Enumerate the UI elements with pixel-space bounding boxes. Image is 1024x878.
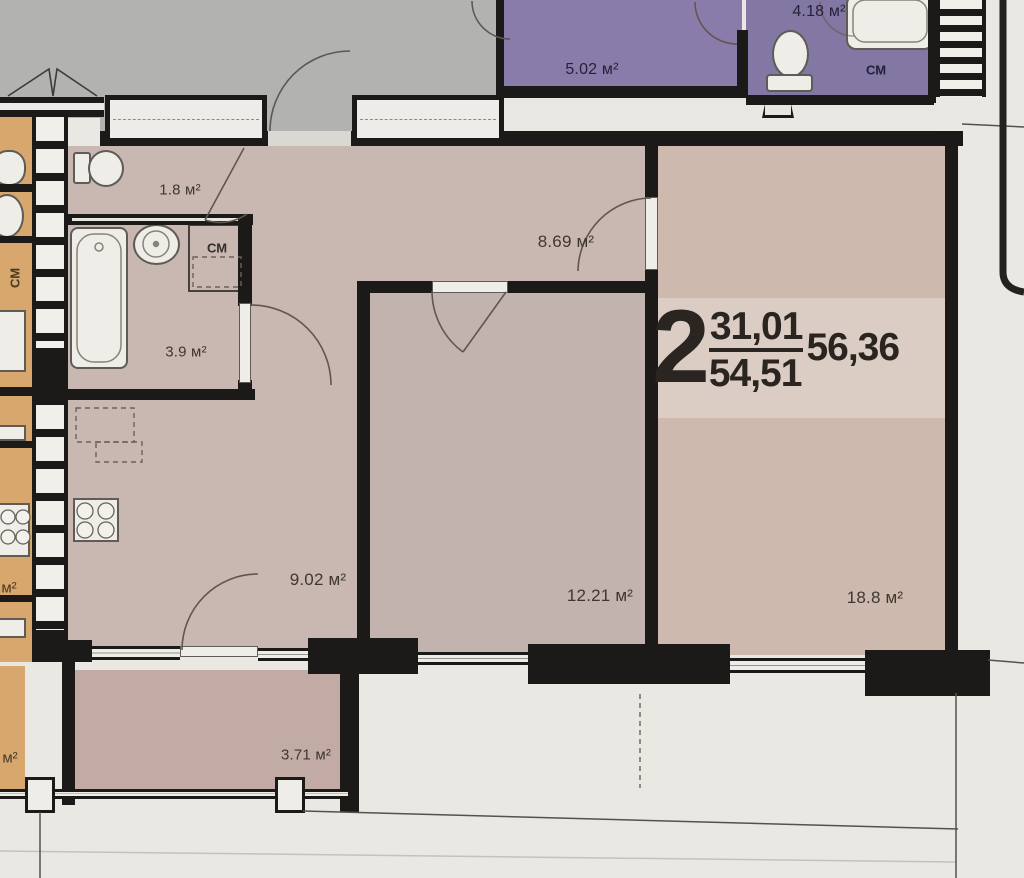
wall-segment <box>502 86 746 98</box>
wall-segment <box>0 236 32 243</box>
balcony-wall <box>62 662 75 805</box>
balcony-floor <box>75 670 340 790</box>
wall-segment <box>32 348 68 398</box>
stove-icon <box>73 498 119 542</box>
neighbor-counter <box>0 425 26 441</box>
door-leaf <box>239 303 251 383</box>
room-label: 5.02 м² <box>565 61 618 79</box>
sink-icon <box>133 224 180 265</box>
door-leaf <box>645 197 658 270</box>
wall-segment <box>238 214 252 306</box>
wall-cavity <box>0 103 104 110</box>
neighbor-counter <box>0 618 26 638</box>
wall-segment <box>357 281 370 655</box>
window <box>418 652 528 665</box>
facade-line <box>962 124 1024 127</box>
neighbor-balcony <box>0 666 25 790</box>
wall-segment <box>928 0 936 103</box>
room-label: 3.9 м² <box>165 344 207 361</box>
wall-pier <box>865 650 990 696</box>
neighbor-toilet-icon <box>0 150 26 186</box>
facade-line <box>303 811 958 829</box>
room-label: 8.69 м² <box>538 232 595 252</box>
washer-label: СМ <box>8 268 23 288</box>
apartment-stamp: 2 31,01 54,51 56,36 <box>652 300 958 418</box>
neighbor-stove-icon <box>0 503 30 557</box>
rooms-count: 2 <box>652 300 709 396</box>
room-label: 9.02 м² <box>290 570 347 590</box>
wall-cavity <box>72 218 246 221</box>
washer-label: СМ <box>866 63 886 78</box>
door-leaf <box>432 281 508 293</box>
rail-post <box>25 777 55 813</box>
toilet-tank-icon <box>766 74 813 92</box>
area-fraction: 31,01 54,51 <box>709 307 804 394</box>
wall-segment <box>0 387 32 396</box>
wall-segment <box>62 640 92 662</box>
wall-segment <box>65 389 255 400</box>
wall-pier <box>308 638 418 674</box>
room-label-partial: м² <box>2 750 17 767</box>
room-5-02 <box>502 0 742 95</box>
toilet-icon <box>772 30 809 78</box>
overall-area: 56,36 <box>806 326 899 370</box>
wall-segment <box>645 146 658 197</box>
wall-segment <box>496 0 504 97</box>
window <box>92 646 180 660</box>
room-label-partial: м² <box>1 580 16 597</box>
floor-plan: 5.02 м² 4.18 м² СМ 1.8 м² СМ 3.9 м² 8.69… <box>0 0 1024 878</box>
total-area: 54,51 <box>709 352 804 394</box>
section-edge-line <box>1003 0 1024 292</box>
bathtub-icon <box>70 227 128 369</box>
facade-line <box>988 660 1024 663</box>
entry-door-opening <box>268 131 351 146</box>
neighbor-counter <box>0 310 26 372</box>
window-block <box>105 95 267 143</box>
washer-label: СМ <box>207 241 227 256</box>
room-label: 3.71 м² <box>281 747 331 764</box>
shaft-hatched-wall <box>936 0 986 97</box>
wall-segment <box>0 441 32 448</box>
balcony-door-leaf <box>180 646 258 657</box>
wall-segment <box>746 95 934 105</box>
living-area: 31,01 <box>709 307 804 352</box>
bathtub-icon <box>846 0 934 50</box>
room-label: 18.8 м² <box>847 588 904 608</box>
window-block <box>352 95 504 143</box>
window <box>258 648 308 661</box>
window <box>730 658 865 673</box>
room-label: 4.18 м² <box>792 3 845 21</box>
toilet-icon <box>88 150 124 187</box>
wall-pier <box>528 644 730 684</box>
room-label: 1.8 м² <box>159 182 201 199</box>
room-label: 12.21 м² <box>567 586 633 606</box>
wall-segment <box>0 110 104 117</box>
wall-segment <box>0 184 32 192</box>
facade-line <box>0 851 956 862</box>
rail-post <box>275 777 305 813</box>
